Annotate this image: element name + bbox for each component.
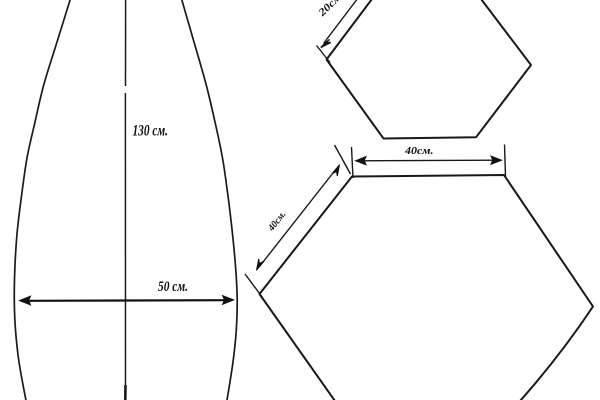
svg-text:40см.: 40см. <box>404 146 434 157</box>
svg-text:20см: 20см <box>316 0 344 19</box>
svg-text:50 см.: 50 см. <box>158 279 188 295</box>
svg-text:40см.: 40см. <box>266 209 289 234</box>
svg-text:130 см.: 130 см. <box>133 123 169 140</box>
